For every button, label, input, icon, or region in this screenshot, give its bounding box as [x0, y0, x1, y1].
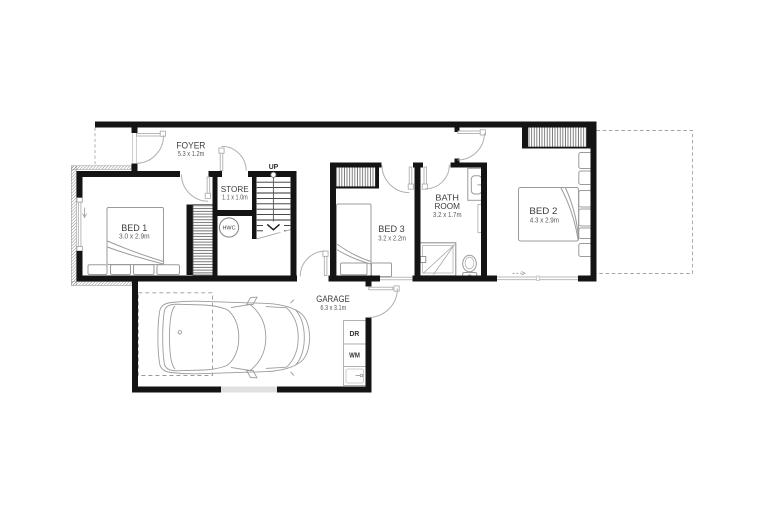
svg-text:FOYER: FOYER: [176, 140, 205, 150]
svg-text:6.3 x 3.1m: 6.3 x 3.1m: [320, 305, 346, 312]
svg-text:HWC: HWC: [223, 226, 236, 232]
svg-text:UP: UP: [269, 162, 279, 171]
svg-text:3.2 x 1.7m: 3.2 x 1.7m: [433, 212, 462, 219]
svg-text:ROOM: ROOM: [434, 201, 460, 211]
svg-text:WM: WM: [349, 353, 360, 360]
svg-text:3.2 x 2.2m: 3.2 x 2.2m: [378, 236, 406, 243]
svg-text:4.3 x 2.9m: 4.3 x 2.9m: [530, 218, 559, 225]
svg-text:DR: DR: [350, 331, 360, 338]
svg-text:STORE: STORE: [221, 184, 249, 194]
svg-text:GARAGE: GARAGE: [316, 294, 350, 304]
svg-text:BED 1: BED 1: [121, 223, 147, 233]
svg-text:5.3 x 1.2m: 5.3 x 1.2m: [178, 151, 205, 158]
svg-text:3.0 x 2.9m: 3.0 x 2.9m: [119, 233, 150, 240]
svg-text:BED 2: BED 2: [529, 206, 557, 216]
svg-text:BED 3: BED 3: [378, 224, 404, 234]
svg-text:1.1 x 1.0m: 1.1 x 1.0m: [222, 195, 248, 202]
